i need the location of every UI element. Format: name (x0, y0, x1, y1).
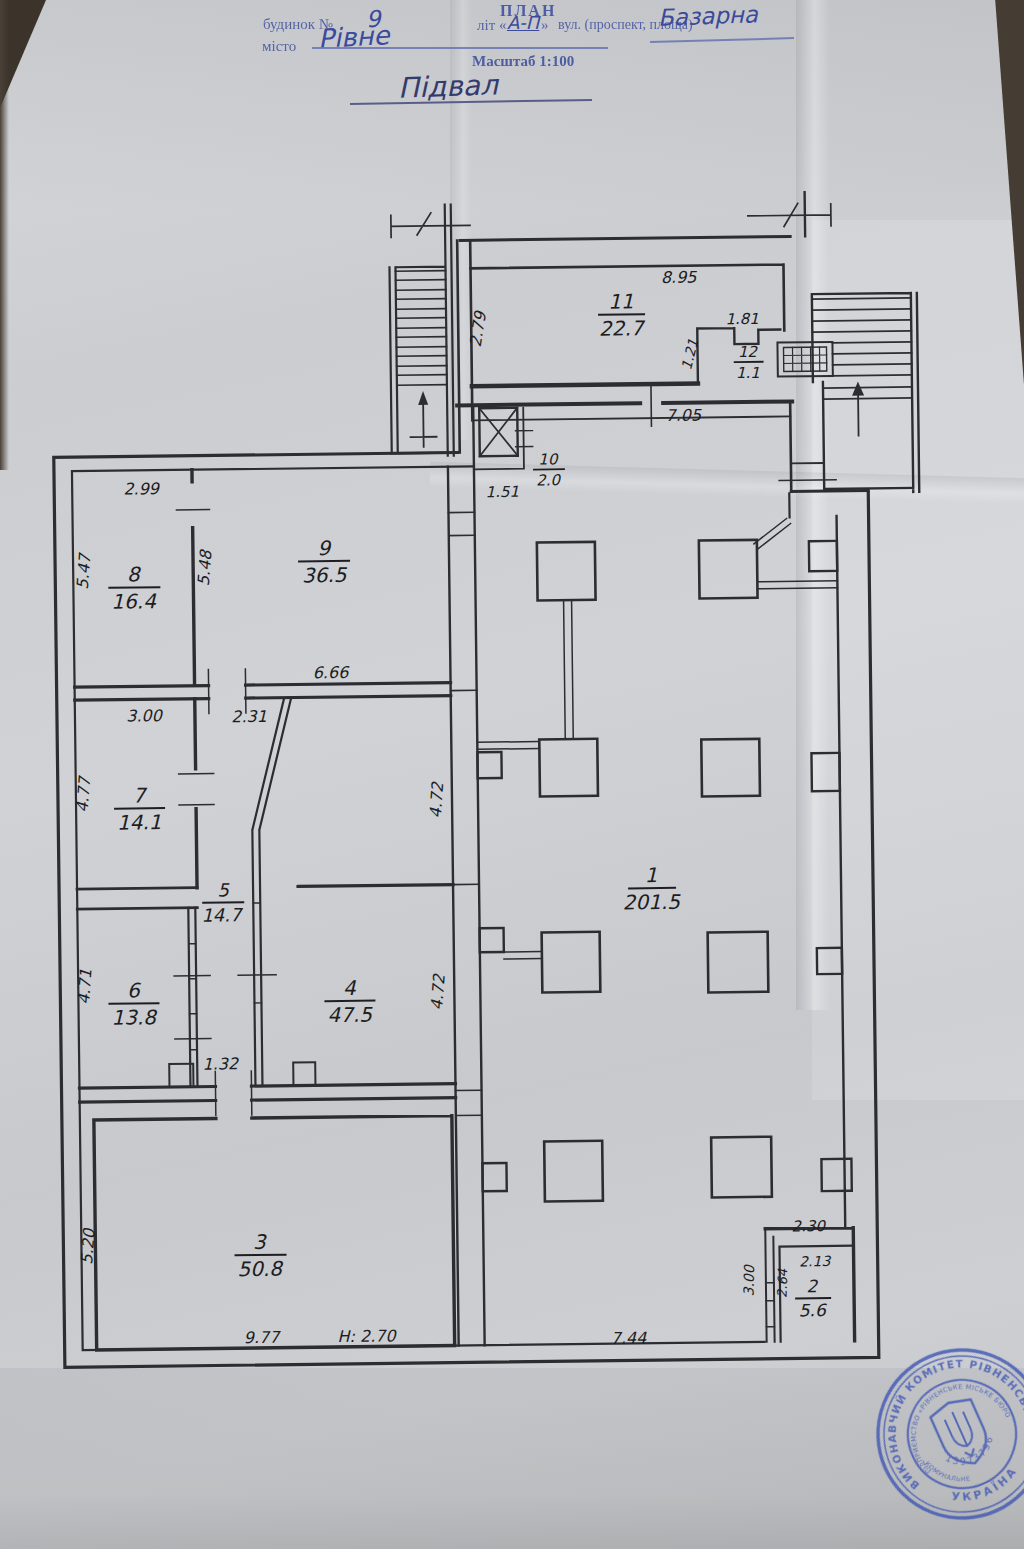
room-number: 6 (127, 978, 142, 1002)
room-number: 10 (538, 450, 559, 468)
dim-label: 2.64 (775, 1268, 791, 1298)
dim-label: 9.77 (244, 1328, 282, 1347)
room-area: 14.7 (201, 904, 244, 926)
room-area: 50.8 (237, 1257, 284, 1282)
room-area: 1.1 (736, 364, 760, 382)
scanned-floorplan-photo: ПЛАН будинок № 9 літ « А-П » вул. (просп… (0, 0, 1024, 1549)
dim-label: 1.32 (202, 1054, 240, 1073)
dim-label: 5.47 (73, 551, 95, 590)
room-number: 3 (253, 1230, 267, 1254)
dim-label: 5.20 (77, 1226, 99, 1265)
room-area: 14.1 (117, 810, 162, 835)
room-area: 5.6 (799, 1300, 827, 1320)
stair-direction-arrow (852, 382, 864, 396)
room-number: 12 (738, 343, 759, 361)
dim-label: 2.30 (791, 1217, 826, 1235)
room-number: 4 (343, 976, 357, 1000)
dim-label: 1.81 (725, 310, 759, 328)
room-number: 8 (127, 562, 142, 586)
room-number: 1 (644, 863, 657, 887)
dim-label: 7.44 (611, 1328, 648, 1347)
room-labels: 1 201.5 2 5.6 3 50.8 4 47.5 5 14.7 6 13.… (101, 287, 831, 1329)
dim-label: 4.72 (426, 780, 448, 819)
room-number: 7 (132, 783, 147, 807)
dimension-labels: 2.99 5.47 5.48 6.66 3.00 4.77 2.31 4.72 … (65, 266, 832, 1354)
dim-label: 2.31 (231, 707, 267, 726)
dim-label: 6.66 (313, 663, 351, 682)
dim-label: 4.71 (74, 968, 96, 1005)
dim-label: 4.77 (73, 774, 95, 813)
photo-edge-dark-left (0, 0, 9, 470)
room-area: 47.5 (327, 1003, 373, 1028)
dim-label: Н: 2.70 (337, 1326, 397, 1346)
room-area: 13.8 (111, 1005, 158, 1030)
room-number: 11 (608, 289, 634, 313)
dim-label: 3.00 (741, 1264, 758, 1297)
room-number: 9 (317, 536, 332, 560)
wall-pilasters (475, 541, 852, 1195)
floor-plan-drawing: 1 201.5 2 5.6 3 50.8 4 47.5 5 14.7 6 13.… (0, 0, 1024, 1549)
dim-label: 2.99 (123, 479, 161, 498)
room-number: 2 (806, 1276, 818, 1296)
room-number: 5 (217, 879, 230, 900)
dim-label: 2.79 (466, 308, 491, 348)
room-area: 22.7 (599, 316, 646, 341)
dim-label: 5.48 (194, 548, 216, 587)
staircase-right (812, 293, 919, 493)
stair-direction-arrow (418, 391, 428, 405)
dimension-break-lines (391, 192, 832, 241)
room-area: 16.4 (111, 589, 157, 614)
dim-label: 3.00 (126, 706, 164, 725)
staircase-left (389, 205, 454, 457)
dim-label: 8.95 (661, 268, 698, 287)
room-area: 36.5 (302, 563, 348, 588)
dim-label: 2.13 (799, 1253, 831, 1269)
window-grate (777, 342, 832, 377)
room-area: 201.5 (622, 890, 681, 915)
dim-label: 7.05 (665, 406, 702, 425)
dim-label: 1.51 (485, 483, 519, 501)
room-area: 2.0 (536, 471, 562, 489)
dim-label: 4.72 (427, 972, 449, 1011)
elevator-shaft (473, 408, 533, 470)
